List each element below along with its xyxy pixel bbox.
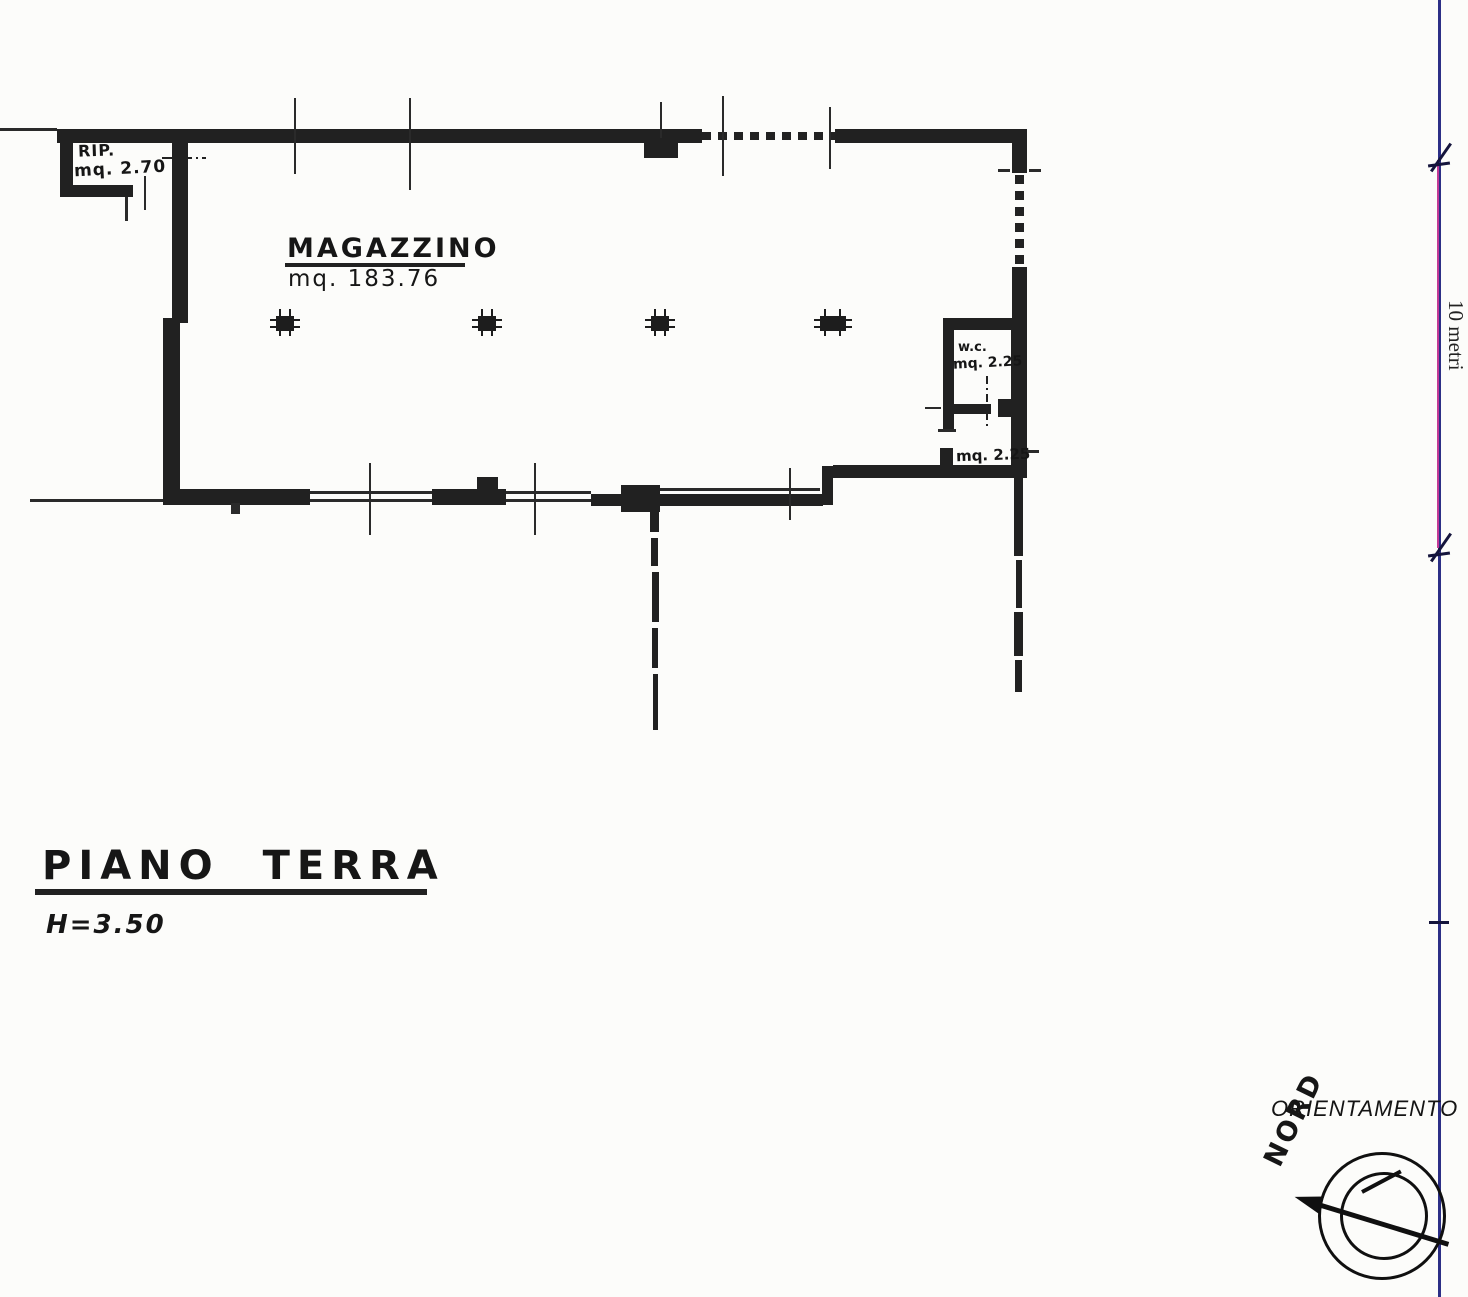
column-tick — [824, 309, 826, 336]
pier-bottom-wall — [477, 477, 498, 490]
boundary-line — [30, 499, 163, 502]
floor-title: PIANO TERRA — [42, 843, 445, 889]
tick — [938, 429, 956, 432]
ceiling-height: H=3.50 — [46, 910, 166, 940]
window-line — [310, 499, 432, 502]
column-marker — [820, 316, 846, 331]
reference-line — [660, 102, 662, 138]
room-area-rip: mq. 2.70 — [74, 157, 167, 182]
reference-line — [369, 463, 371, 535]
boundary-wall-right — [1014, 478, 1023, 556]
column-marker — [276, 316, 294, 331]
scale-tick-slash — [1430, 143, 1452, 173]
window-line — [506, 491, 591, 494]
column-marker — [478, 316, 496, 331]
boundary-wall-lower — [652, 572, 659, 622]
wc-door-line — [986, 376, 988, 430]
reference-line — [722, 96, 724, 176]
column-tick — [491, 309, 493, 336]
room-label-rip: RIP. — [78, 140, 116, 160]
tick — [925, 407, 941, 409]
tick — [144, 176, 146, 210]
scale-tick-plain — [1429, 921, 1449, 924]
boundary-wall-right — [1016, 560, 1022, 608]
column-tick — [289, 309, 291, 336]
window-line — [658, 488, 820, 491]
title-underline — [35, 889, 427, 895]
boundary-wall-lower — [653, 674, 658, 730]
reference-line — [409, 98, 411, 190]
window-line — [506, 499, 591, 502]
tick — [1029, 169, 1041, 172]
wall-left-lower — [163, 318, 180, 498]
reference-line — [829, 107, 831, 169]
boundary-wall-right — [1014, 612, 1023, 656]
wall-step-vertical — [822, 466, 833, 505]
compass-needle-head — [1292, 1188, 1324, 1213]
wall-top-west — [57, 129, 702, 143]
wall-left-upper — [172, 141, 188, 323]
pier-top-wall — [644, 141, 678, 158]
reference-line — [789, 468, 791, 520]
boundary-wall-lower — [650, 506, 659, 532]
boundary-wall-lower — [652, 628, 658, 668]
column-tick — [472, 326, 502, 328]
wall-step-horizontal — [833, 465, 945, 478]
wall-right-upper — [1012, 133, 1027, 173]
wall-right-mid — [1012, 267, 1027, 320]
room-label-wc: w.c. — [958, 340, 987, 355]
wall-bottom — [432, 489, 506, 505]
boundary-wall-right — [1015, 660, 1022, 692]
reference-line — [534, 463, 536, 535]
room-label-magazzino: MAGAZZINO — [287, 233, 500, 264]
column-tick — [645, 319, 675, 321]
column-tick — [664, 309, 666, 336]
column-tick — [814, 319, 852, 321]
wc-door-jamb — [998, 399, 1026, 417]
column-marker — [651, 316, 669, 331]
boundary-wall-lower — [651, 538, 658, 566]
wall-top-east — [835, 129, 1027, 143]
column-tick — [814, 326, 852, 328]
room-area-storage: mq. 2.25 — [956, 445, 1031, 466]
window-line — [310, 491, 432, 494]
column-tick — [270, 319, 300, 321]
room-area-magazzino: mq. 183.76 — [288, 266, 440, 292]
wc-wall-bottom — [943, 465, 1027, 478]
rip-wall-bottom — [60, 185, 133, 197]
reference-line — [294, 98, 296, 174]
floor-plan-sheet: RIP. mq. 2.70 MAGAZZINO mq. 183.76 w.c. … — [0, 0, 1468, 1297]
rip-door-leaf — [125, 197, 128, 221]
column-tick — [839, 309, 841, 336]
column-tick — [481, 309, 483, 336]
column-tick — [654, 309, 656, 336]
scale-highlight — [1437, 160, 1439, 548]
wall-right-opening-dashed — [1015, 175, 1024, 267]
scale-label: 10 metri — [1443, 300, 1468, 371]
column-tick — [279, 309, 281, 336]
tick — [998, 169, 1010, 172]
column-tick — [270, 326, 300, 328]
tick — [231, 503, 240, 514]
boundary-line — [0, 128, 57, 131]
column-tick — [472, 319, 502, 321]
scale-tick-slash — [1430, 533, 1452, 563]
column-tick — [645, 326, 675, 328]
